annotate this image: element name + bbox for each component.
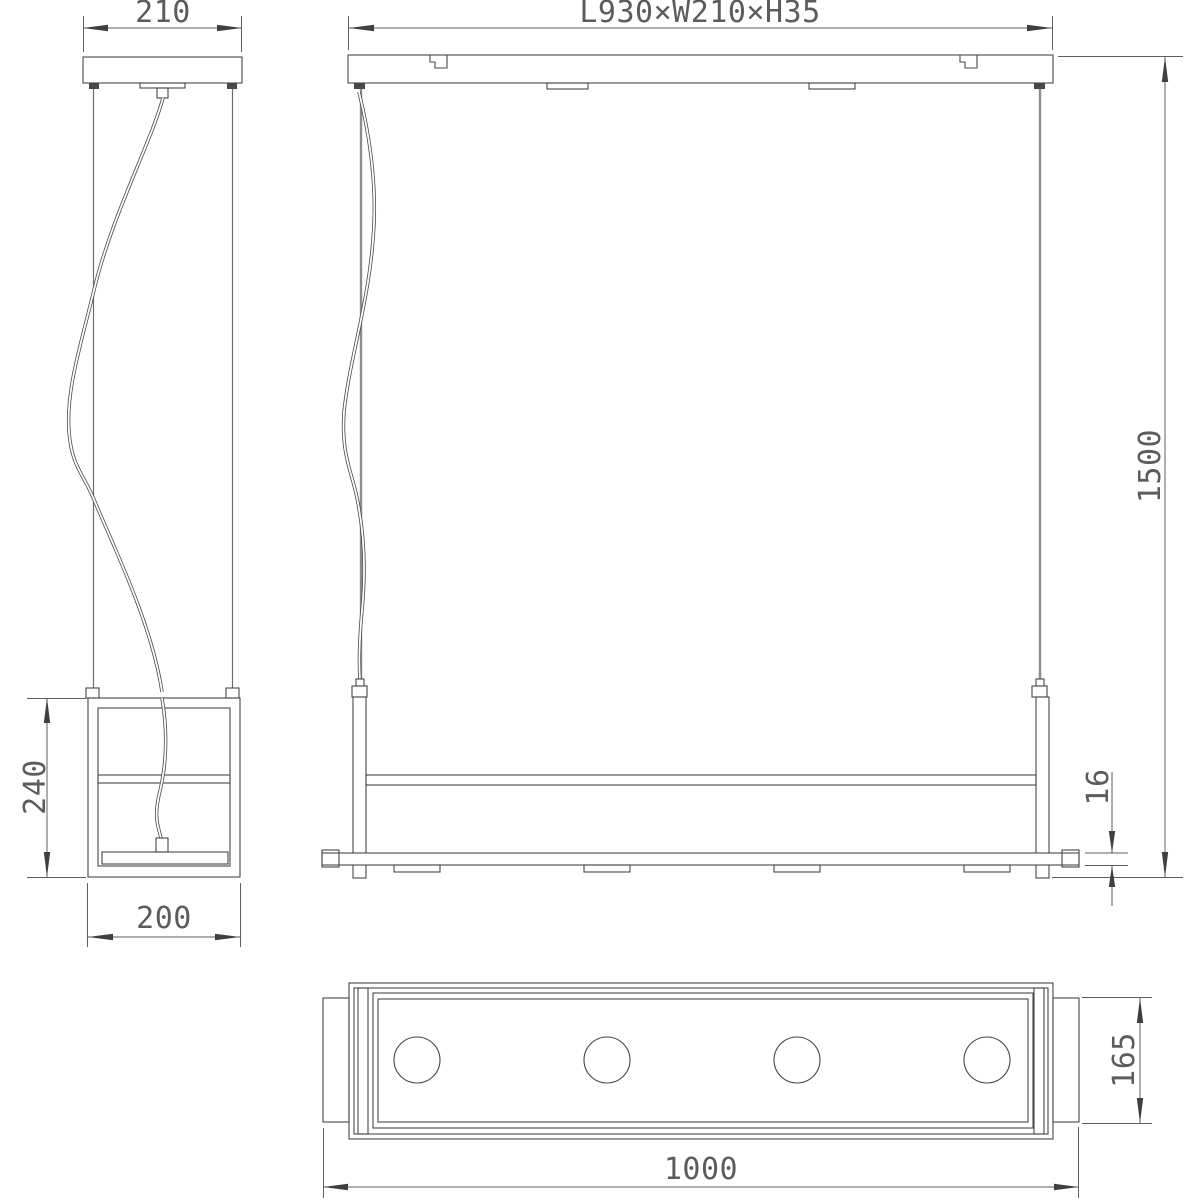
wire-gripper [86, 688, 99, 698]
body-outer-frame [349, 983, 1053, 1139]
ceiling-canopy-side [83, 57, 242, 83]
wire-gripper [226, 688, 239, 698]
dimension-annotations: 210 L930×W210×H35 1500 240 [18, 0, 1183, 1198]
cord-connector [156, 838, 168, 852]
dim-overall-length: 1000 [323, 1127, 1079, 1198]
rail-mount-tab [809, 83, 855, 89]
dim-shelf-thickness: 16 [1081, 768, 1128, 906]
cable-gripper [1032, 686, 1047, 697]
frame-post-left [353, 697, 366, 878]
dim-canopy-width: 210 [83, 0, 242, 52]
led-lens [394, 1037, 440, 1083]
rail-mount-tab [547, 83, 588, 89]
dim-label-240: 240 [18, 759, 53, 815]
dim-side-height: 240 [18, 698, 86, 878]
frame-top-bar [366, 775, 1036, 785]
dim-label-210: 210 [135, 0, 191, 30]
led-module-edge [774, 865, 820, 872]
cable-gripper-top [356, 679, 364, 686]
wire-fitting [89, 83, 99, 89]
cable-gripper-top [1036, 679, 1044, 686]
dim-drop-height: 1500 [1052, 57, 1183, 878]
technical-drawing-page: 210 L930×W210×H35 1500 240 [0, 0, 1200, 1200]
dim-label-200: 200 [136, 901, 192, 936]
dim-fixture-size: L930×W210×H35 [349, 0, 1053, 50]
shelf-bar-side [102, 852, 228, 864]
led-lens [964, 1037, 1010, 1083]
power-cord [69, 98, 163, 692]
power-cord-core [69, 98, 163, 692]
post-section-left [358, 988, 368, 1134]
cable-fitting [354, 83, 365, 89]
dimension-drawing: 210 L930×W210×H35 1500 240 [0, 0, 1200, 1200]
front-view [322, 55, 1079, 878]
ceiling-rail [348, 55, 1053, 83]
side-view [69, 57, 242, 877]
shelf-bar [322, 853, 1079, 865]
cable-fitting [1034, 83, 1045, 89]
cord-gland [157, 88, 168, 98]
dim-label-lwh: L930×W210×H35 [579, 0, 820, 30]
frame-post-right [1036, 697, 1049, 878]
dim-label-16: 16 [1081, 768, 1116, 805]
dim-body-width: 165 [1082, 998, 1152, 1124]
diffuser-panel [373, 993, 1033, 1128]
keyhole-slot [960, 55, 977, 68]
cable-gripper [352, 686, 367, 697]
canopy-plate [140, 83, 185, 88]
keyhole-slot [430, 55, 447, 68]
dim-side-width: 200 [88, 883, 241, 947]
dim-label-1000: 1000 [664, 1152, 738, 1187]
side-bracket-left [323, 998, 349, 1122]
side-bracket-right [1053, 998, 1079, 1122]
led-lens [584, 1037, 630, 1083]
power-cord-front-core [343, 92, 374, 681]
wire-fitting [227, 83, 237, 89]
post-section-right [1034, 988, 1044, 1134]
dim-label-165: 165 [1107, 1032, 1142, 1088]
led-module-edge [584, 865, 630, 872]
led-lens [774, 1037, 820, 1083]
diffuser-panel-inner [378, 999, 1028, 1122]
dim-label-1500: 1500 [1133, 429, 1168, 503]
body-offset-frame [354, 988, 1048, 1134]
bottom-view [323, 983, 1079, 1139]
led-module-edge [394, 865, 440, 872]
led-module-edge [964, 865, 1010, 872]
